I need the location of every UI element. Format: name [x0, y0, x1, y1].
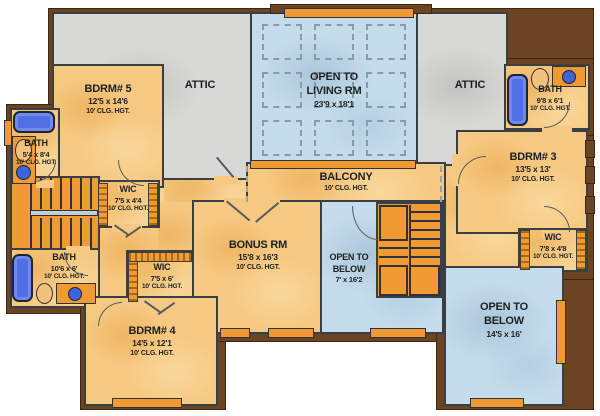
room-label-balcony: BALCONY 10' CLG. HGT.: [300, 170, 392, 193]
room-dims: 10'6 x 6': [28, 264, 100, 274]
room-name: BALCONY: [300, 170, 392, 184]
room-dims: 23'9 x 18'1: [288, 99, 380, 110]
window: [268, 328, 314, 338]
room-ceiling: 10' CLG. HGT.: [300, 184, 392, 193]
window: [556, 300, 566, 364]
room-label-attic-right: ATTIC: [438, 78, 502, 92]
door-opening: [214, 176, 238, 184]
room-dims: 13'5 x 13': [478, 164, 588, 175]
room-name: BDRM# 3: [478, 150, 588, 164]
room-label-wic2: WIC 7'5 x 6' 10' CLG. HGT.: [134, 262, 190, 292]
room-name: BATH: [518, 84, 582, 96]
room-label-bdrm4: BDRM# 4 14'5 x 12'1 10' CLG. HGT.: [96, 324, 208, 358]
room-dims: 5'4 x 8'4: [10, 150, 62, 160]
stair-treads: [409, 205, 440, 265]
window: [284, 8, 414, 18]
sink-icon: [562, 70, 576, 84]
stair-treads: [32, 218, 98, 248]
closet-shelf: [128, 252, 192, 262]
room-ceiling: 10' CLG. HGT.: [518, 105, 582, 113]
window: [585, 196, 595, 214]
stair-landing: [409, 265, 440, 296]
room-label-open-living: OPEN TO LIVING RM 23'9 x 18'1: [288, 70, 380, 110]
room-dims: 15'8 x 16'3: [202, 252, 314, 263]
room-dims: 12'5 x 14'6: [58, 96, 158, 107]
room-label-bath-left: BATH 5'4 x 8'4 10' CLG. HGT.: [10, 138, 62, 168]
staircase-right: [376, 202, 442, 298]
room-label-bonus: BONUS RM 15'8 x 16'3 10' CLG. HGT.: [202, 238, 314, 272]
floor-plan: BDRM# 5 12'5 x 14'6 10' CLG. HGT. ATTIC …: [0, 0, 600, 416]
room-ceiling: 10' CLG. HGT.: [478, 175, 588, 184]
stair-landing: [379, 265, 408, 296]
room-name: WIC: [524, 232, 582, 244]
staircase-left: [10, 176, 100, 250]
room-name: ATTIC: [168, 78, 232, 92]
room-name: OPEN TO: [288, 70, 380, 84]
room-name: BDRM# 4: [96, 324, 208, 338]
room-ceiling: 10' CLG. HGT.: [10, 159, 62, 167]
room-dims: 7' x 16'2: [318, 275, 380, 285]
stair-rail: [30, 210, 98, 216]
stair-landing: [379, 205, 408, 241]
room-dims: 14'5 x 16': [466, 329, 542, 340]
room-dims: 14'5 x 12'1: [96, 338, 208, 349]
room-name: WIC: [100, 184, 156, 196]
room-label-open-below-center: OPEN TO BELOW 7' x 16'2: [318, 252, 380, 285]
room-name: OPEN TO: [466, 300, 542, 314]
room-name: OPEN TO: [318, 252, 380, 264]
room-ceiling: 10' CLG. HGT.: [134, 283, 190, 291]
room-label-attic-left: ATTIC: [168, 78, 232, 92]
room-name: BONUS RM: [202, 238, 314, 252]
room-label-open-below-right: OPEN TO BELOW 14'5 x 16': [466, 300, 542, 340]
room-dims: 7'5 x 4'4: [100, 196, 156, 206]
balcony-railing: [250, 160, 416, 169]
room-dims: 7'5 x 6': [134, 274, 190, 284]
opening-dashed: [440, 166, 442, 202]
room-name: BELOW: [466, 314, 542, 328]
room-label-wic-right: WIC 7'8 x 4'8 10' CLG. HGT.: [524, 232, 582, 262]
room-label-bdrm5: BDRM# 5 12'5 x 14'6 10' CLG. HGT.: [58, 82, 158, 116]
room-ceiling: 10' CLG. HGT.: [28, 273, 100, 281]
sink-icon: [68, 287, 82, 301]
room-ceiling: 10' CLG. HGT.: [96, 349, 208, 358]
room-name: BATH: [10, 138, 62, 150]
window: [370, 328, 426, 338]
room-name: BDRM# 5: [58, 82, 158, 96]
room-label-bath-bl: BATH 10'6 x 6' 10' CLG. HGT.: [28, 252, 100, 282]
window: [112, 398, 182, 408]
toilet-icon: [36, 283, 53, 304]
room-dims: 9'8 x 6'1: [518, 96, 582, 106]
room-label-wic1: WIC 7'5 x 4'4 10' CLG. HGT.: [100, 184, 156, 214]
room-label-bdrm3: BDRM# 3 13'5 x 13' 10' CLG. HGT.: [478, 150, 588, 184]
room-dims: 7'8 x 4'8: [524, 244, 582, 254]
window: [220, 328, 250, 338]
opening-dashed: [246, 166, 248, 202]
room-name: BELOW: [318, 264, 380, 276]
stair-treads: [379, 242, 408, 265]
window: [470, 398, 524, 408]
room-ceiling: 10' CLG. HGT.: [100, 205, 156, 213]
room-name: WIC: [134, 262, 190, 274]
room-ceiling: 10' CLG. HGT.: [202, 263, 314, 272]
room-ceiling: 10' CLG. HGT.: [524, 253, 582, 261]
room-label-bath-tr: BATH 9'8 x 6'1 10' CLG. HGT.: [518, 84, 582, 114]
room-name: ATTIC: [438, 78, 502, 92]
room-name: BATH: [28, 252, 100, 264]
room-name: LIVING RM: [288, 84, 380, 98]
room-ceiling: 10' CLG. HGT.: [58, 107, 158, 116]
stair-landing: [12, 178, 32, 248]
bathtub-icon: [13, 111, 55, 133]
